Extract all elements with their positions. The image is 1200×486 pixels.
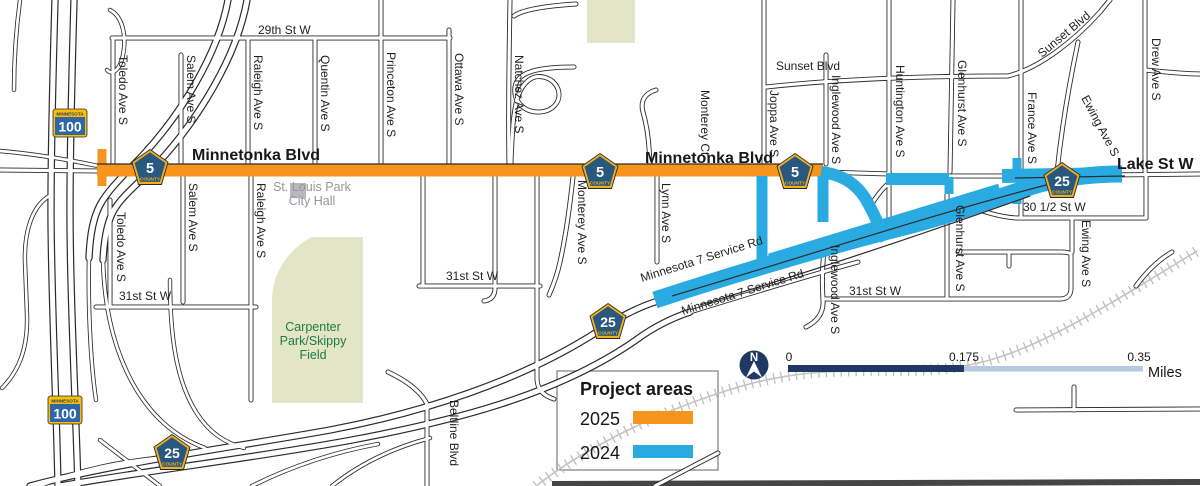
city-hall-label-line1: St. Louis Park [273,180,352,194]
legend-label-2025: 2025 [580,409,620,429]
label-31st-e: 31st St W [849,284,902,298]
state-caption: MINNESOTA [56,112,84,117]
scale-label-mid: 0.175 [949,350,979,364]
county-number: 25 [164,445,180,461]
legend-swatch-2024 [633,445,693,458]
label-inglewood-s: Inglewood Ave S [828,245,842,334]
label-31st-c: 31st St W [446,269,499,283]
county-number: 5 [596,165,604,181]
label-quentin: Quentin Ave S [318,55,332,132]
label-glenhurst-n: Glenhurst Ave S [955,60,969,147]
label-joppa: Joppa Ave S [767,90,781,157]
county-caption: COUNTY [598,331,619,337]
north-arrow: N [740,351,769,380]
scale-segment-light [964,366,1143,372]
county-25-shield-mn7: 25 COUNTY [590,304,626,339]
county-5-shield-2: 5 COUNTY [582,154,618,189]
state-number: 100 [58,119,82,135]
label-princeton: Princeton Ave S [384,52,398,137]
label-31st-w: 31st St W [119,289,172,303]
county-caption: COUNTY [140,177,161,183]
park-polygon-small [587,0,635,43]
label-29th-st: 29th St W [258,23,311,37]
label-monterey-ave: Monterey Ave S [575,180,589,265]
county-number: 25 [1054,173,1070,189]
label-toledo-n: Toledo Ave S [116,55,130,125]
carpenter-park-label-line1: Carpenter [285,320,341,334]
label-ewing-s: Ewing Ave S [1079,220,1093,287]
label-natchez: Natchez Ave S [512,55,526,134]
label-toledo-s: Toledo Ave S [114,212,128,282]
label-minnetonka-east: Minnetonka Blvd [645,150,773,167]
label-30half-st: 30 1/2 St W [1023,200,1086,214]
county-caption: COUNTY [590,181,611,187]
carpenter-park-label-line2: Park/Skippy [280,334,347,348]
county-number: 25 [600,314,616,330]
county-number: 5 [146,161,154,177]
carpenter-park-label-line3: Field [299,348,326,362]
label-drew: Drew Ave S [1149,38,1163,100]
label-inglewood-n: Inglewood Ave S [829,75,843,164]
label-france: France Ave S [1025,92,1039,164]
scale-segment-dark [788,365,964,372]
label-huntington: Huntington Ave S [893,65,907,158]
legend-title: Project areas [580,379,693,399]
mn-100-shield-north: MINNESOTA 100 [53,109,87,137]
label-sunset-e: Sunset Blvd [1035,8,1093,60]
label-ewing-n: Ewing Ave S [1078,93,1122,159]
legend-swatch-2025 [633,411,693,424]
scale-label-zero: 0 [786,350,793,364]
county-5-shield-3: 5 COUNTY [777,154,813,189]
label-sunset-w: Sunset Blvd [776,59,840,73]
label-salem-n: Salem Ave S [184,55,198,123]
scale-unit: Miles [1148,365,1182,381]
legend-label-2024: 2024 [580,443,620,463]
bottom-edge-road [552,482,1200,484]
scale-label-max: 0.35 [1127,350,1151,364]
label-raleigh-s: Raleigh Ave S [254,183,268,258]
city-hall-label-line2: City Hall [289,194,336,208]
project-map: 29th St W Toledo Ave S Salem Ave S Ralei… [0,0,1200,486]
county-caption: COUNTY [1052,190,1073,196]
mn-100-shield-south: MINNESOTA 100 [48,396,82,424]
label-lake-st: Lake St W [1117,156,1194,173]
label-monterey-ct: Monterey Ct [698,90,712,156]
label-minnetonka-west: Minnetonka Blvd [192,147,320,164]
county-caption: COUNTY [785,181,806,187]
state-caption: MINNESOTA [51,399,79,404]
county-number: 5 [791,165,799,181]
legend: Project areas 2025 2024 [580,379,693,463]
label-salem-s: Salem Ave S [186,183,200,251]
map-canvas: 29th St W Toledo Ave S Salem Ave S Ralei… [0,0,1200,486]
county-caption: COUNTY [162,462,183,468]
label-ottawa: Ottawa Ave S [452,53,466,126]
label-lynn: Lynn Ave S [659,183,673,243]
label-raleigh-n: Raleigh Ave S [251,55,265,130]
county-25-shield-lake: 25 COUNTY [1044,163,1080,198]
label-beltline: Beltline Blvd [447,400,461,466]
label-glenhurst-s: Glenhurst Ave S [953,205,967,292]
state-number: 100 [53,406,77,422]
